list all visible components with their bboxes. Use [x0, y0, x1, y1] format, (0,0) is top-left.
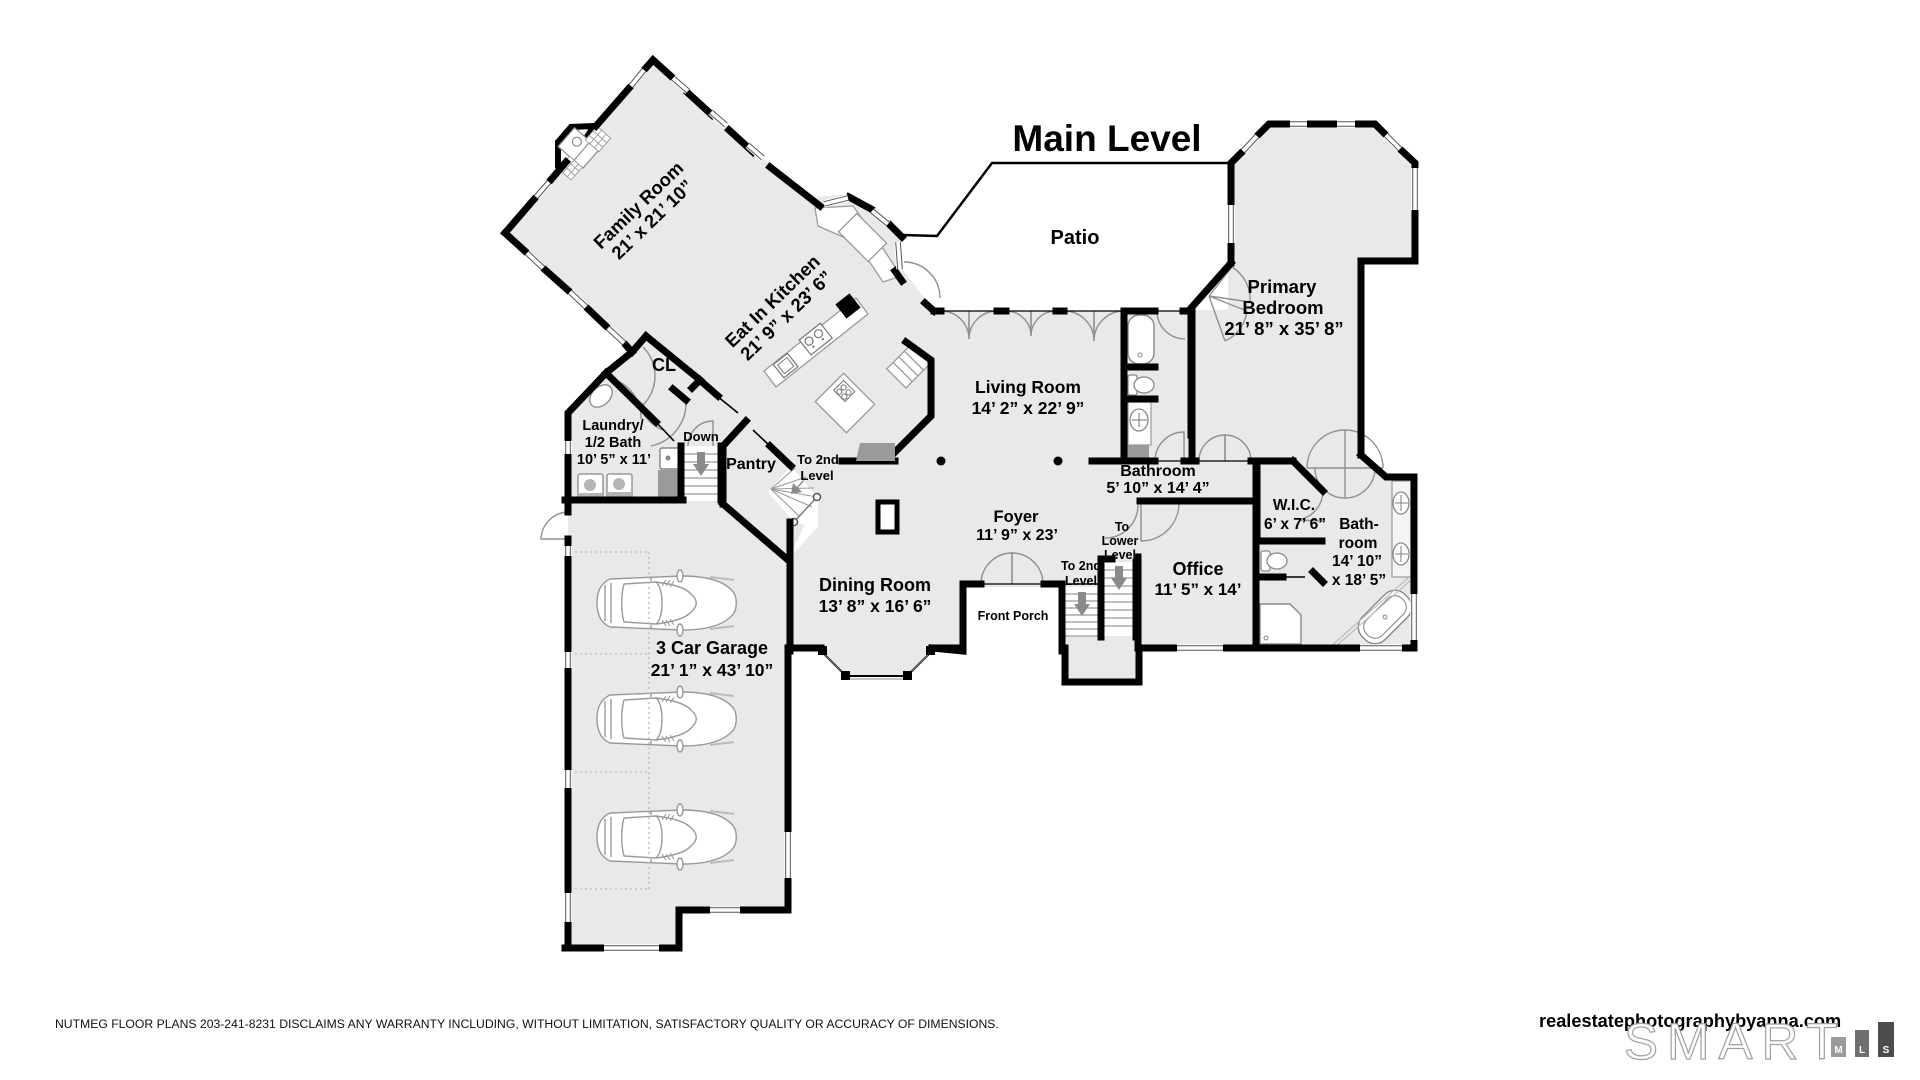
svg-text:14’ 2” x 22’ 9”: 14’ 2” x 22’ 9”	[972, 398, 1085, 418]
svg-text:Main Level: Main Level	[1012, 118, 1201, 159]
svg-text:11’ 5” x 14’: 11’ 5” x 14’	[1155, 580, 1242, 599]
svg-text:Bathroom: Bathroom	[1120, 463, 1196, 480]
svg-text:Primary: Primary	[1248, 276, 1318, 297]
svg-text:1/2 Bath: 1/2 Bath	[585, 435, 641, 451]
svg-text:S: S	[1883, 1045, 1890, 1056]
svg-text:SMART: SMART	[1624, 1013, 1847, 1070]
svg-text:x 18’ 5”: x 18’ 5”	[1332, 572, 1386, 589]
svg-text:Front Porch: Front Porch	[978, 609, 1049, 623]
svg-text:Level: Level	[1104, 548, 1136, 562]
svg-text:Bath-: Bath-	[1339, 516, 1379, 533]
svg-text:Level: Level	[1065, 574, 1097, 588]
svg-text:Down: Down	[683, 429, 718, 444]
svg-text:L: L	[1859, 1045, 1865, 1056]
svg-text:Living Room: Living Room	[975, 377, 1081, 397]
svg-text:21’ 8” x 35’ 8”: 21’ 8” x 35’ 8”	[1224, 318, 1343, 339]
svg-text:10’ 5” x 11’: 10’ 5” x 11’	[577, 452, 651, 468]
svg-text:Lower: Lower	[1102, 534, 1139, 548]
svg-text:To 2nd: To 2nd	[1061, 559, 1101, 573]
svg-text:To: To	[1115, 520, 1130, 534]
svg-text:W.I.C.: W.I.C.	[1273, 497, 1315, 514]
svg-text:To 2nd: To 2nd	[797, 452, 839, 467]
svg-text:11’ 9” x 23’: 11’ 9” x 23’	[976, 527, 1058, 544]
svg-text:Dining Room: Dining Room	[819, 575, 931, 595]
svg-text:M: M	[1834, 1045, 1842, 1056]
svg-text:Level: Level	[800, 468, 833, 483]
svg-text:Pantry: Pantry	[726, 456, 776, 473]
svg-text:room: room	[1339, 535, 1378, 552]
svg-text:Patio: Patio	[1051, 227, 1100, 249]
svg-text:NUTMEG FLOOR PLANS 203-241-823: NUTMEG FLOOR PLANS 203-241-8231 DISCLAIM…	[55, 1017, 999, 1031]
svg-text:14’ 10”: 14’ 10”	[1332, 553, 1382, 570]
svg-text:CL: CL	[652, 355, 676, 375]
svg-text:Foyer: Foyer	[994, 508, 1040, 526]
svg-text:Laundry/: Laundry/	[582, 418, 643, 434]
svg-text:Bedroom: Bedroom	[1242, 297, 1323, 318]
svg-text:Office: Office	[1172, 559, 1223, 579]
svg-text:6’ x 7’ 6”: 6’ x 7’ 6”	[1264, 516, 1326, 533]
svg-text:21’ 1” x 43’ 10”: 21’ 1” x 43’ 10”	[651, 660, 774, 680]
svg-text:3 Car Garage: 3 Car Garage	[656, 638, 768, 658]
svg-text:13’ 8” x 16’ 6”: 13’ 8” x 16’ 6”	[819, 596, 932, 616]
svg-text:5’ 10” x 14’ 4”: 5’ 10” x 14’ 4”	[1106, 480, 1209, 497]
